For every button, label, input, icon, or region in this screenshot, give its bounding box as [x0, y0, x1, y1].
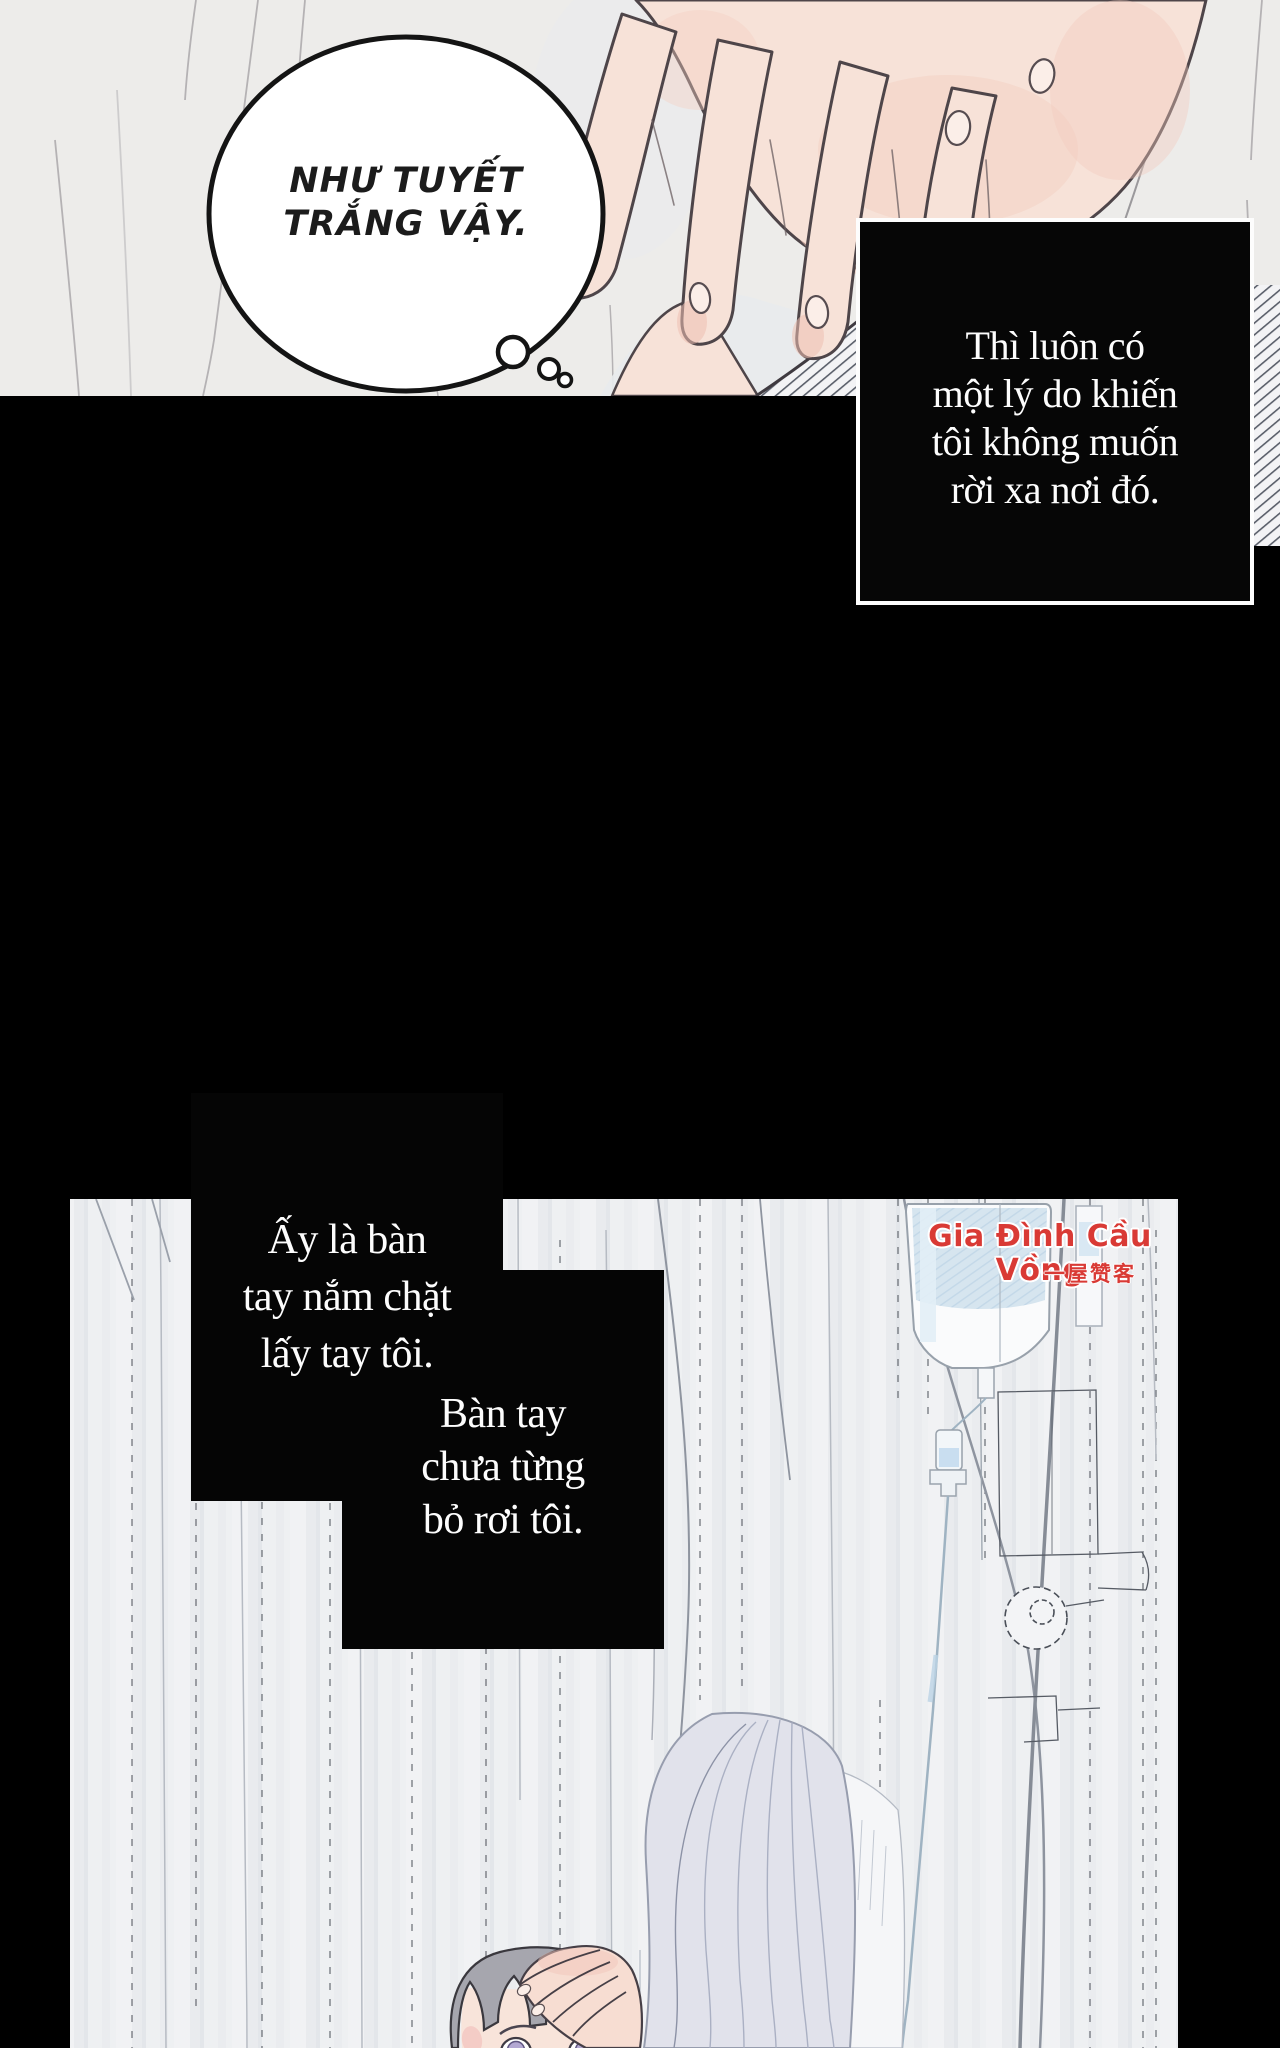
thought-trail-dot [559, 374, 572, 387]
narration-line: rời xa nơi đó. [951, 466, 1160, 514]
narration-box-group: Ấy là bàn tay nắm chặt lấy tay tôi. Bàn … [191, 1093, 664, 1649]
thought-bubble: NHƯ TUYẾT TRẮNG VẬY. [206, 160, 606, 246]
narration-box-1: Thì luôn có một lý do khiến tôi không mu… [856, 218, 1254, 605]
thought-line: TRẮNG VẬY. [206, 203, 606, 246]
thought-line: NHƯ TUYẾT [206, 160, 606, 203]
narration-line: chưa từng [421, 1441, 584, 1494]
woman-hair [644, 1713, 855, 2048]
narration-line: Thì luôn có [966, 322, 1145, 370]
thought-trail-dot [498, 337, 528, 367]
comic-page: NHƯ TUYẾT TRẮNG VẬY. Thì luôn có một lý … [0, 0, 1280, 2048]
thought-trail-dot [539, 359, 559, 379]
watermark-subtitle: 一屋赞客 [1030, 1258, 1150, 1288]
narration-line: bỏ rơi tôi. [423, 1494, 583, 1547]
narration-box-3: Bàn tay chưa từng bỏ rơi tôi. [342, 1270, 664, 1649]
narration-line: Ấy là bàn [268, 1212, 427, 1269]
narration-line: Bàn tay [440, 1388, 566, 1441]
narration-line: tôi không muốn [932, 418, 1178, 466]
narration-line: một lý do khiến [933, 370, 1178, 418]
man-figure [451, 1946, 642, 2048]
